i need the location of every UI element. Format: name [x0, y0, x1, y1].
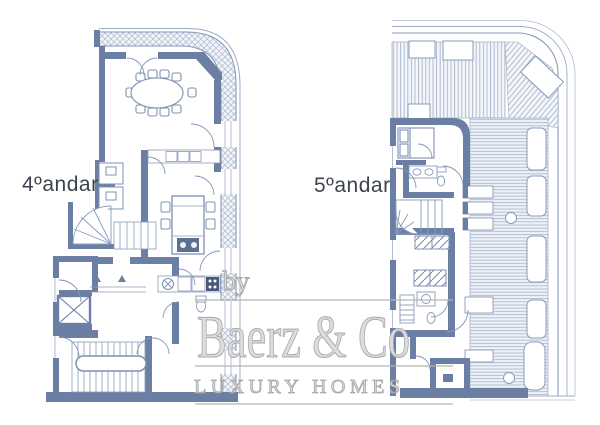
floor-plan-page: 4ºandar 5ºandar by Baerz & Co LUXURY HOM… [0, 0, 600, 425]
spiral-staircase-4 [73, 206, 111, 244]
straight-staircase-4 [114, 222, 156, 249]
bed [398, 128, 434, 158]
oval-dining-table [126, 70, 196, 116]
watermark-tagline: LUXURY HOMES [194, 376, 406, 398]
floor-5-label: 5ºandar [314, 174, 391, 197]
floor-4-label: 4ºandar [22, 173, 99, 196]
kitchen [148, 150, 220, 312]
elevator [58, 296, 90, 324]
watermark-prefix: by [223, 266, 251, 296]
floor-plans-image: 4ºandar 5ºandar by Baerz & Co LUXURY HOM… [0, 0, 600, 425]
watermark-brand: Baerz & Co [197, 304, 410, 370]
wardrobes [414, 236, 449, 286]
upper-bathroom [409, 166, 446, 186]
floor-plan-5-drawing [390, 21, 575, 401]
